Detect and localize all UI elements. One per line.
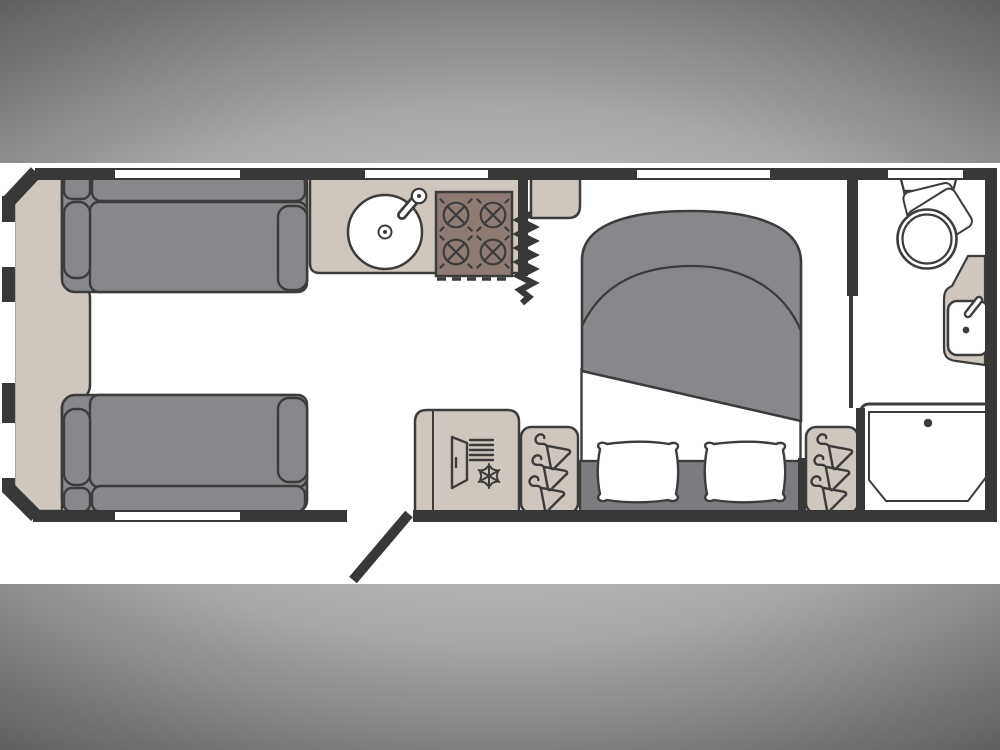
window: [888, 170, 963, 178]
window: [0, 222, 15, 267]
wardrobe-left: [521, 427, 578, 513]
window: [365, 170, 488, 178]
wardrobe-right: [804, 427, 858, 513]
pillow: [705, 442, 786, 503]
window: [115, 170, 240, 178]
window: [0, 423, 15, 478]
window: [637, 170, 770, 178]
island-bed: [580, 211, 806, 514]
sofa-top: [62, 170, 307, 292]
floorplan-svg: [0, 0, 1000, 750]
wall-washroom-partition: [847, 168, 858, 296]
pillow: [598, 442, 679, 503]
wall-washroom-partition-lower: [856, 408, 865, 517]
refrigerator: [415, 410, 519, 515]
wall-right: [985, 168, 997, 522]
shower-tray: [860, 404, 994, 516]
wall-bottom-right: [413, 510, 997, 522]
caravan-floorplan: [0, 0, 1000, 750]
wall-washroom-partition-thin: [849, 296, 853, 408]
window: [115, 512, 240, 520]
window: [0, 302, 15, 383]
sofa-bottom: [62, 395, 307, 513]
wall-kitchen-divider: [518, 168, 528, 276]
hob-icon: [436, 192, 512, 279]
